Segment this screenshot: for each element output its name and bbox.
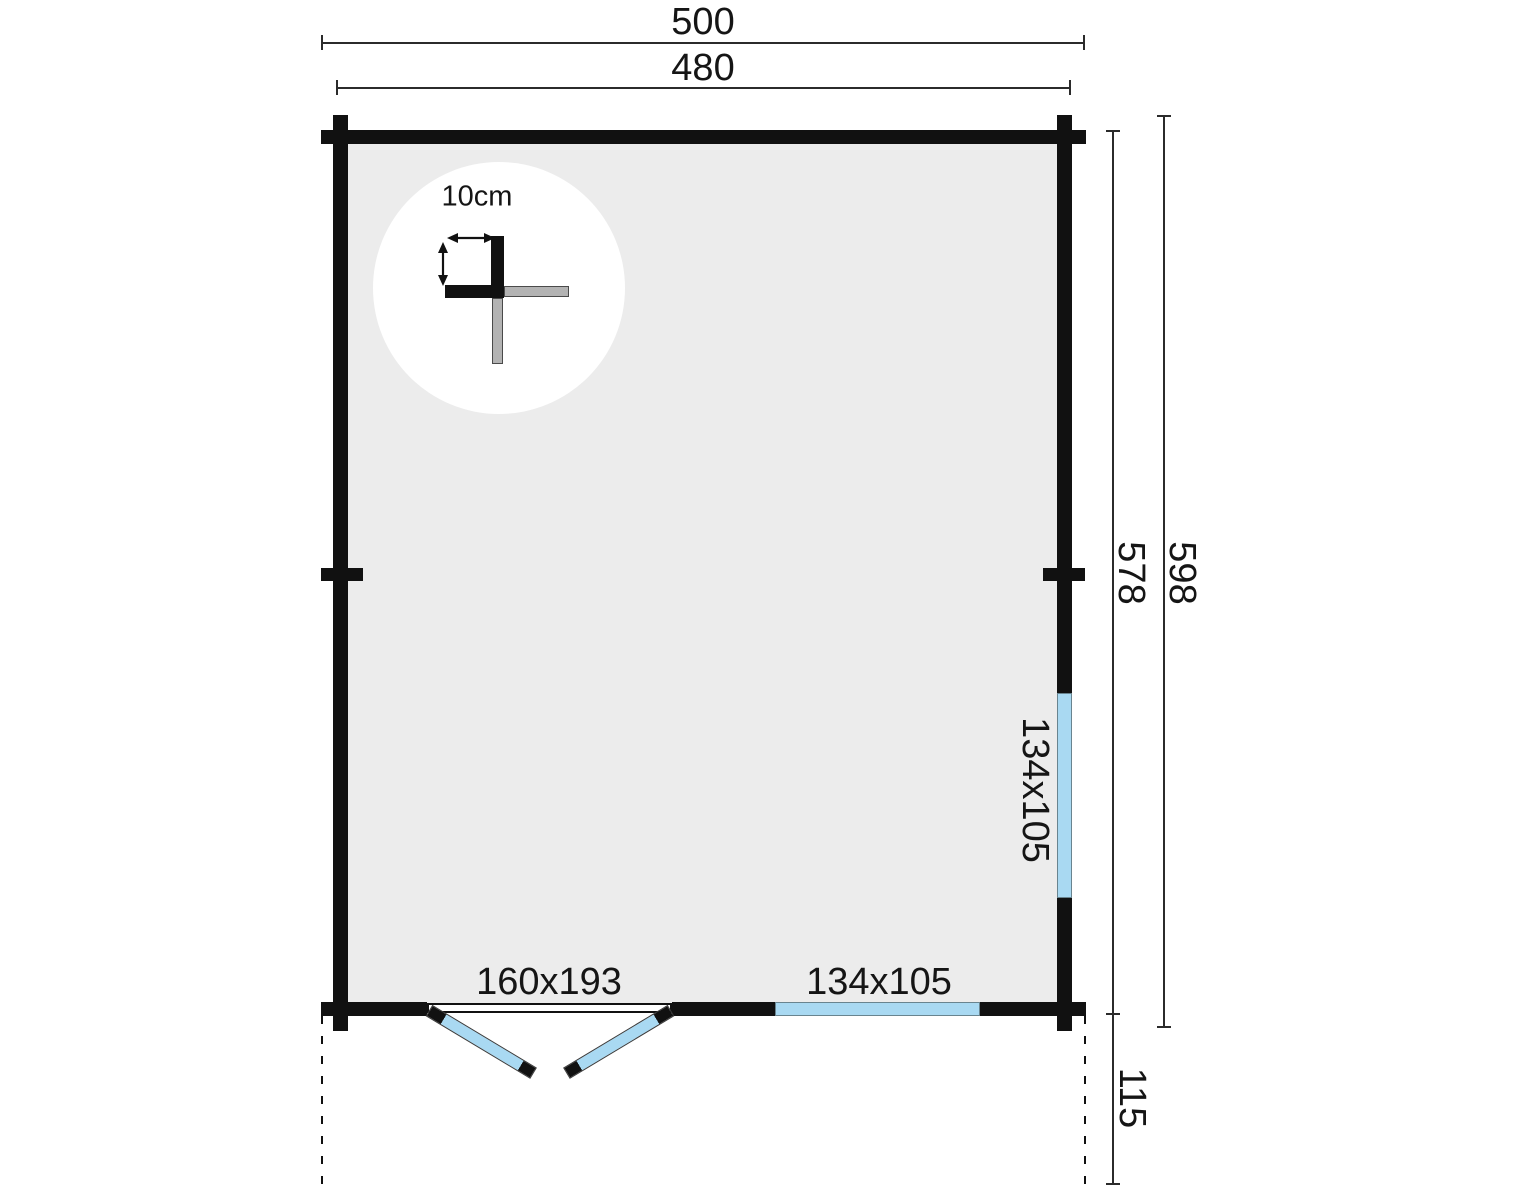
dim-tick (336, 80, 338, 95)
dim-tick (1106, 1183, 1120, 1185)
wall-bottom-left-segment (321, 1002, 427, 1016)
dim-tick (1083, 35, 1085, 50)
dim-tick (321, 35, 323, 50)
door-leaf-left (426, 1005, 537, 1079)
door-leaf-right (563, 1005, 674, 1079)
detail-log-black-horizontal (445, 285, 504, 298)
log-crossing-left (321, 568, 363, 581)
door-threshold (427, 1003, 672, 1013)
dim-tick (1157, 115, 1171, 117)
wall-thickness-label: 10cm (442, 183, 513, 212)
front-window-size-label: 134x105 (806, 963, 952, 1001)
side-window-size-label: 134x105 (1016, 717, 1054, 863)
wall-bottom-right-segment (980, 1002, 1086, 1016)
detail-log-gray-horizontal (504, 286, 569, 297)
terrace-dashed-left (321, 1016, 323, 1188)
inner-width-label: 480 (671, 49, 734, 87)
wall-height-label: 578 (1112, 541, 1150, 604)
dim-tick (1106, 130, 1120, 132)
outer-height-label: 598 (1163, 541, 1201, 604)
horizontal-double-arrow-icon (447, 231, 495, 245)
dim-tick (1069, 80, 1071, 95)
dim-tick (1157, 1026, 1171, 1028)
outer-width-label: 500 (671, 3, 734, 41)
door-size-label: 160x193 (476, 963, 622, 1001)
floor-plan-canvas: 10cm 500 480 578 598 (0, 0, 1530, 1188)
wall-right-upper (1057, 115, 1072, 693)
terrace-depth-label: 115 (1113, 1068, 1151, 1129)
terrace-dashed-right (1084, 1016, 1086, 1188)
front-window (775, 1002, 980, 1016)
side-window (1057, 693, 1072, 898)
wall-bottom-middle-segment (672, 1002, 775, 1016)
vertical-double-arrow-icon (436, 242, 450, 286)
log-crossing-right (1043, 568, 1085, 581)
detail-log-gray-vertical (492, 298, 503, 364)
wall-top (321, 130, 1086, 144)
